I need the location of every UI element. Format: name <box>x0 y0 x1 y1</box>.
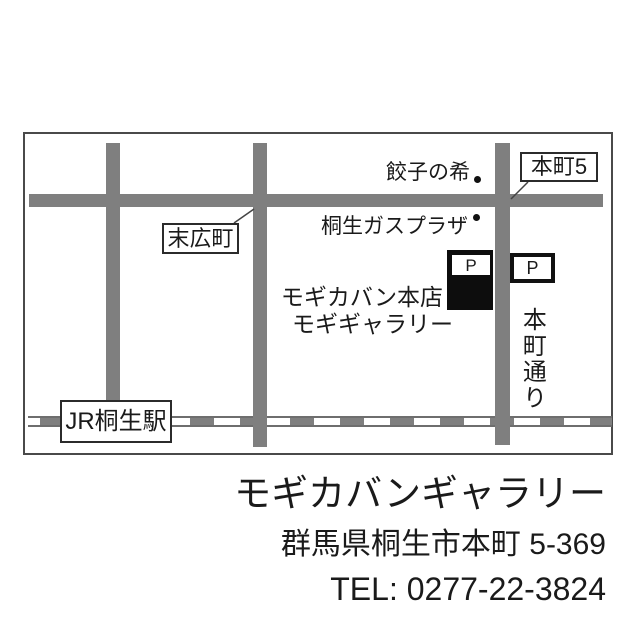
suehirocho-label: 末広町 <box>167 228 233 250</box>
label-box-honcho5: 本町5 <box>520 152 598 182</box>
street-name-honcho-dori: 本町通り <box>518 307 544 411</box>
shop-name-line1: モギカバン本店 <box>255 285 443 310</box>
shop-name-line2: モギギャラリー <box>265 312 453 337</box>
poi-gyoza-no-nozomi: 餃子の希 <box>320 161 470 184</box>
honcho5-label: 本町5 <box>531 156 587 178</box>
shop-phone: TEL: 0277-22-3824 <box>234 572 606 606</box>
shop-info: モギカバンギャラリー 群馬県桐生市本町 5-369 TEL: 0277-22-3… <box>234 471 606 606</box>
access-map-flyer: 本町5 末広町 JR桐生駅 餃子の希 桐生ガスプラザ P P モギカバン本店 モ… <box>0 0 640 643</box>
map: 本町5 末広町 JR桐生駅 餃子の希 桐生ガスプラザ P P モギカバン本店 モ… <box>23 132 613 455</box>
poi-dot-gas-plaza <box>473 214 480 221</box>
parking-sign-right: P <box>510 253 555 283</box>
poi-kiryu-gas-plaza: 桐生ガスプラザ <box>295 215 468 238</box>
poi-dot-gyoza <box>474 176 481 183</box>
label-box-jr-kiryu-station: JR桐生駅 <box>60 400 172 443</box>
pointer-line-honcho5 <box>511 182 528 199</box>
shop-address: 群馬県桐生市本町 5-369 <box>234 528 606 562</box>
label-box-suehirocho: 末広町 <box>162 223 239 254</box>
jr-station-label: JR桐生駅 <box>65 410 166 434</box>
parking-icon: P <box>526 259 538 277</box>
shop-title: モギカバンギャラリー <box>234 471 606 517</box>
pointer-line-suehirocho <box>234 209 254 223</box>
